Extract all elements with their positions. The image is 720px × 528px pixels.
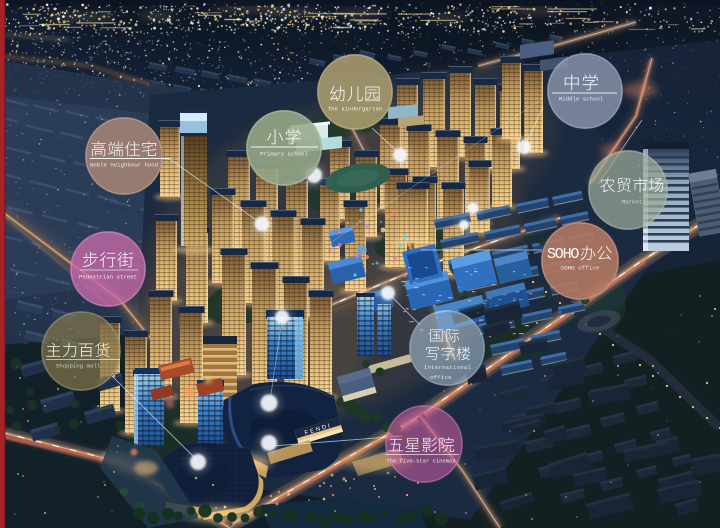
svg-text:Noble neighbour hood: Noble neighbour hood [90, 162, 158, 169]
svg-text:Primary school: Primary school [260, 151, 308, 158]
svg-text:SOHO office: SOHO office [561, 265, 600, 272]
svg-text:Market: Market [622, 199, 642, 206]
svg-text:SOHO: SOHO [547, 246, 579, 263]
svg-text:The five-star cinemas: The five-star cinemas [386, 458, 455, 465]
svg-text:The kindergarten: The kindergarten [328, 106, 383, 113]
svg-text:office: office [430, 374, 452, 381]
svg-text:International: International [424, 364, 471, 371]
svg-text:Middle school: Middle school [559, 96, 604, 103]
svg-text:Pedestrian street: Pedestrian street [79, 274, 137, 281]
svg-text:Shopping mall: Shopping mall [56, 363, 101, 370]
